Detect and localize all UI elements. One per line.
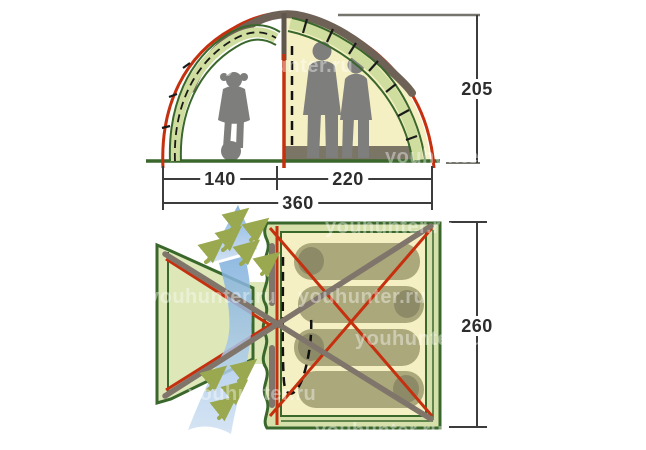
tent-diagram-stage: 205 140 220 360 260 youhunter.ruyouhunte… [0, 0, 646, 450]
dimension-label-height: 205 [457, 79, 497, 99]
ball [221, 141, 241, 161]
dimension-label-vestibule-width: 140 [200, 169, 240, 189]
dimension-label-total-width: 360 [278, 193, 318, 213]
dimension-label-depth: 260 [457, 316, 497, 336]
dimension-label-inner-width: 220 [328, 169, 368, 189]
plan-view [157, 205, 487, 434]
tent-diagram-canvas [0, 0, 646, 450]
child-silhouette [218, 72, 250, 161]
elevation-view [146, 13, 480, 210]
